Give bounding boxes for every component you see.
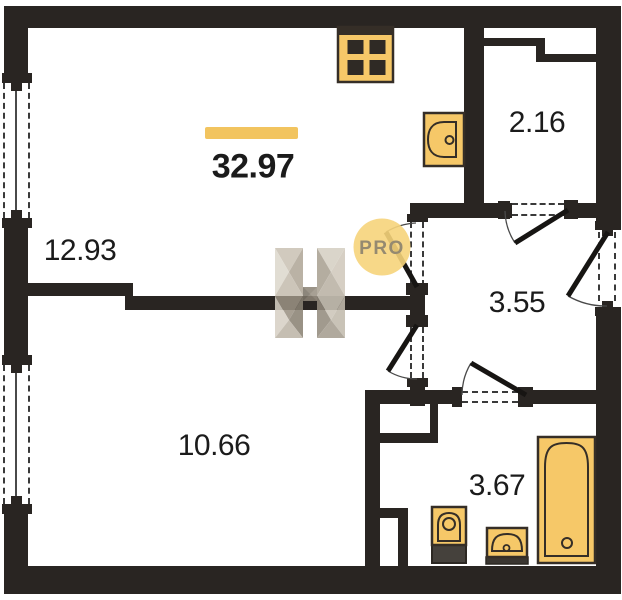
window-2-bottom-frame xyxy=(11,496,22,504)
window-1-bottom-frame xyxy=(11,210,22,218)
door-entrance-leaf xyxy=(568,232,608,296)
window-2-dash-outer xyxy=(3,365,5,504)
door-storage-hinge xyxy=(564,200,578,219)
window-2-top-cap xyxy=(2,355,32,365)
door-bedroom-dash-right xyxy=(422,327,424,378)
toilet-icon xyxy=(432,507,466,563)
door-bedroom-hinge xyxy=(406,315,428,327)
stove-icon xyxy=(337,26,394,82)
wall-right-upper xyxy=(596,6,621,222)
door-entrance-dash-right xyxy=(614,232,616,301)
washbasin-icon xyxy=(486,528,528,564)
total-area-label: 32.97 xyxy=(212,148,295,187)
window-1-bottom-cap xyxy=(2,218,32,228)
wall-right-lower xyxy=(596,316,621,594)
door-living-dash-right xyxy=(422,222,424,286)
door-bathroom-dash-bottom xyxy=(462,401,518,403)
wall-bathroom-top-left xyxy=(365,390,458,404)
wall-bottom xyxy=(4,566,621,594)
room-area-label-hallway: 3.55 xyxy=(489,286,545,320)
storage-step-wall-c xyxy=(545,54,597,62)
door-entrance-jamb-top xyxy=(595,221,621,230)
door-living-hinge xyxy=(406,283,428,295)
door-bathroom-jamb-left xyxy=(452,387,462,407)
door-living-dash-left xyxy=(410,222,412,286)
wall-bedroom-bathroom xyxy=(365,392,380,568)
floor-plan: PRO 32.97 12.93 10.66 3.55 2.16 3.67 xyxy=(0,0,622,600)
door-bedroom-leaf xyxy=(388,325,417,371)
wall-living-bedroom-a xyxy=(28,283,133,296)
wall-living-storage xyxy=(464,28,484,206)
door-storage-jamb-left xyxy=(498,201,510,219)
wall-living-bedroom-b xyxy=(125,296,425,310)
window-2-glass xyxy=(15,373,17,496)
bathroom-duct1-bottom xyxy=(380,433,438,443)
room-area-label-bathroom: 3.67 xyxy=(469,469,525,503)
pro-badge: PRO xyxy=(354,219,411,276)
door-storage-dash-bottom xyxy=(512,214,564,216)
room-area-label-living: 12.93 xyxy=(44,234,117,268)
door-bedroom-dash-left xyxy=(410,327,412,378)
wall-left-middle xyxy=(4,228,28,355)
door-entrance-frame-top xyxy=(602,230,613,236)
door-bedroom-jamb-bottom xyxy=(407,378,428,387)
window-1-dash-inner xyxy=(28,83,30,218)
window-2-top-frame xyxy=(11,365,22,373)
total-area-accent-bar xyxy=(205,127,298,139)
door-entrance-jamb-bottom xyxy=(595,307,621,316)
storage-step-wall-b xyxy=(536,46,545,62)
window-1-top-cap xyxy=(2,73,32,83)
pro-badge-text: PRO xyxy=(359,238,405,259)
room-area-label-storage: 2.16 xyxy=(509,106,565,140)
door-living-leaf xyxy=(386,232,417,287)
window-2-dash-inner xyxy=(28,365,30,504)
window-1-top-frame xyxy=(11,83,22,91)
brand-watermark-h xyxy=(275,248,345,338)
wall-top xyxy=(4,6,621,28)
bathroom-duct2-right xyxy=(398,508,408,568)
door-living-jamb-top xyxy=(407,214,428,222)
window-1-dash-outer xyxy=(3,83,5,218)
wall-left-upper xyxy=(4,6,28,73)
kitchen-sink-icon xyxy=(424,112,469,167)
door-bathroom-hinge xyxy=(518,387,533,407)
wall-bathroom-top-right xyxy=(523,390,597,404)
bathtub-icon xyxy=(538,437,595,563)
window-2-bottom-cap xyxy=(2,504,32,514)
door-storage-dash-top xyxy=(512,203,564,205)
window-1-glass xyxy=(15,91,17,210)
storage-step-wall-a xyxy=(484,38,545,46)
door-bathroom-dash-top xyxy=(462,391,518,393)
door-entrance-dash-left xyxy=(598,232,600,301)
pro-badge-circle xyxy=(354,219,411,276)
room-area-label-bedroom: 10.66 xyxy=(178,429,251,463)
